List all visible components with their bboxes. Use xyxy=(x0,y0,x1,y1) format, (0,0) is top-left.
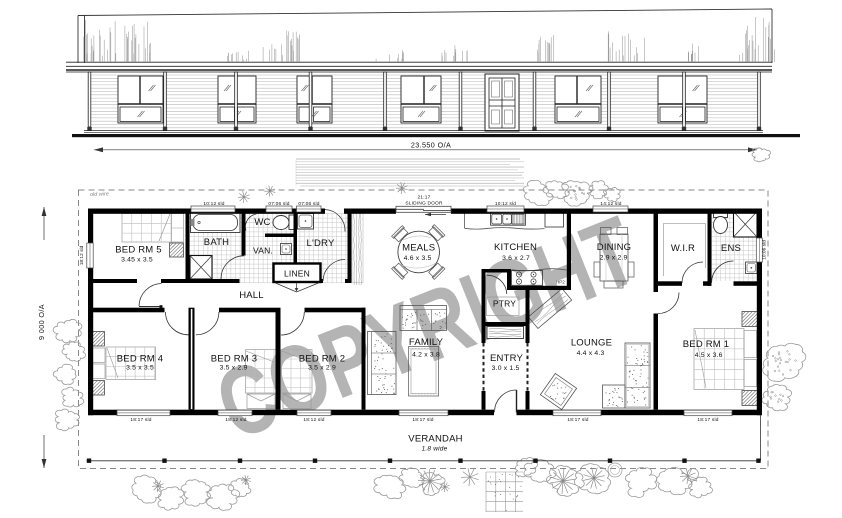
svg-text:18:12 sld: 18:12 sld xyxy=(79,245,85,265)
svg-text:18:17 sld: 18:17 sld xyxy=(567,417,588,423)
svg-text:W.I.R: W.I.R xyxy=(671,243,695,254)
svg-text:1.8 wide: 1.8 wide xyxy=(422,446,448,453)
svg-text:WC: WC xyxy=(254,217,270,228)
svg-text:VAN.: VAN. xyxy=(253,246,273,256)
svg-text:3.5 x 2.9: 3.5 x 2.9 xyxy=(220,365,248,372)
svg-text:14:12 sld: 14:12 sld xyxy=(600,201,621,207)
svg-text:LOUNGE: LOUNGE xyxy=(571,338,612,349)
svg-text:HP2: HP2 xyxy=(556,280,565,285)
svg-text:DINING: DINING xyxy=(597,242,631,253)
svg-text:VERANDAH: VERANDAH xyxy=(408,434,462,445)
svg-text:3.6 x 2.7: 3.6 x 2.7 xyxy=(502,255,530,262)
svg-text:3.5 x 2.9: 3.5 x 2.9 xyxy=(308,365,336,372)
svg-text:BED RM 3: BED RM 3 xyxy=(211,354,257,365)
svg-text:ENTRY: ENTRY xyxy=(490,353,523,364)
svg-text:old wire: old wire xyxy=(90,191,109,198)
svg-text:3.0 x 1.5: 3.0 x 1.5 xyxy=(492,365,520,372)
svg-text:23.550 O/A: 23.550 O/A xyxy=(411,140,451,149)
svg-text:18:12 sld: 18:12 sld xyxy=(303,417,324,423)
svg-text:21:17: 21:17 xyxy=(417,195,430,201)
svg-text:PTRY: PTRY xyxy=(493,299,516,309)
svg-text:L'DRY: L'DRY xyxy=(307,238,335,249)
svg-text:07:06 sld: 07:06 sld xyxy=(268,201,289,207)
svg-text:BED RM 4: BED RM 4 xyxy=(117,354,163,365)
svg-text:BED RM 5: BED RM 5 xyxy=(115,245,161,256)
svg-text:10:12 sld: 10:12 sld xyxy=(495,201,516,207)
svg-text:BED RM 1: BED RM 1 xyxy=(683,339,729,350)
svg-text:10:12 sld: 10:12 sld xyxy=(203,201,224,207)
svg-text:MEALS: MEALS xyxy=(402,243,435,254)
svg-text:2.9 x 2.9: 2.9 x 2.9 xyxy=(600,255,628,262)
svg-text:HALL: HALL xyxy=(239,290,264,301)
svg-text:BED RM 2: BED RM 2 xyxy=(299,354,345,365)
svg-text:4.6 x 3.5: 4.6 x 3.5 xyxy=(404,255,432,262)
svg-text:3.5 x 3.5: 3.5 x 3.5 xyxy=(126,365,154,372)
svg-text:3.45 x 3.5: 3.45 x 3.5 xyxy=(121,257,153,264)
svg-text:4.5 x 3.6: 4.5 x 3.6 xyxy=(695,352,723,359)
svg-text:KITCHEN: KITCHEN xyxy=(494,242,537,253)
svg-text:18:17 sld: 18:17 sld xyxy=(412,417,433,423)
svg-text:FAMILY: FAMILY xyxy=(409,337,444,348)
svg-text:LINEN: LINEN xyxy=(284,269,310,279)
svg-text:ENS: ENS xyxy=(721,243,741,254)
svg-text:07:06 sld: 07:06 sld xyxy=(298,201,319,207)
svg-text:18:17 sld: 18:17 sld xyxy=(697,417,718,423)
svg-text:18:12 sld: 18:12 sld xyxy=(225,417,246,423)
svg-text:10:06 sld: 10:06 sld xyxy=(762,240,768,260)
svg-text:SLIDING DOOR: SLIDING DOOR xyxy=(405,201,443,207)
svg-text:18:17 sld: 18:17 sld xyxy=(130,417,151,423)
svg-text:BATH: BATH xyxy=(204,237,229,248)
svg-text:4.4 x 4.3: 4.4 x 4.3 xyxy=(577,350,605,357)
svg-text:4.2 x 3.8: 4.2 x 3.8 xyxy=(412,352,440,359)
svg-text:9 000 O/A: 9 000 O/A xyxy=(37,304,46,340)
